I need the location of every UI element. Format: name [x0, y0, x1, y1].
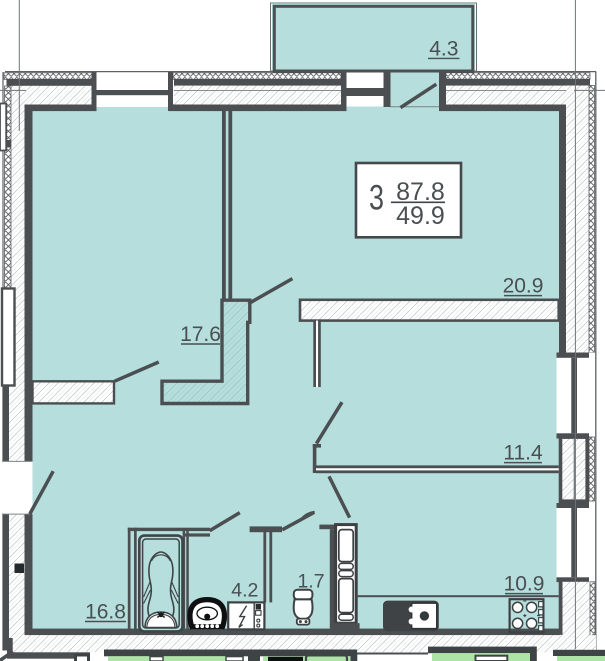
svg-text:10.9: 10.9 — [504, 573, 545, 596]
svg-text:4.3: 4.3 — [429, 38, 458, 61]
svg-text:4.2: 4.2 — [231, 580, 258, 602]
svg-text:17.6: 17.6 — [180, 323, 221, 346]
svg-text:16.8: 16.8 — [85, 601, 126, 624]
svg-text:49.9: 49.9 — [396, 202, 445, 230]
svg-text:3: 3 — [369, 179, 384, 218]
svg-text:1.7: 1.7 — [297, 571, 324, 593]
svg-text:20.9: 20.9 — [503, 275, 544, 298]
svg-text:11.4: 11.4 — [503, 442, 543, 465]
